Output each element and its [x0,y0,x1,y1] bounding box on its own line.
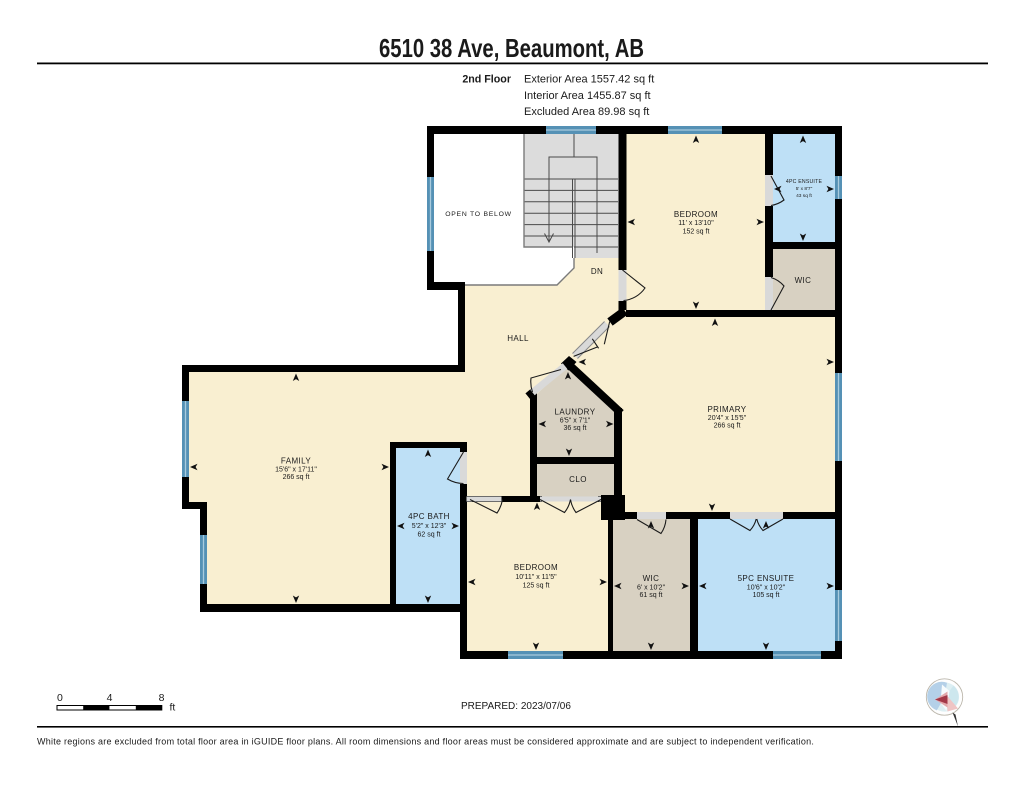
svg-text:266 sq ft: 266 sq ft [714,423,741,430]
svg-text:105 sq ft: 105 sq ft [753,592,780,599]
svg-text:Exterior Area 1557.42 sq ft: Exterior Area 1557.42 sq ft [524,74,654,86]
svg-text:11' x 13'10": 11' x 13'10" [678,220,714,227]
svg-text:43 sq ft: 43 sq ft [796,193,812,199]
svg-text:LAUNDRY: LAUNDRY [555,408,596,417]
svg-text:PRIMARY: PRIMARY [707,405,746,414]
svg-text:DN: DN [591,267,603,276]
svg-text:5PC ENSUITE: 5PC ENSUITE [738,574,795,583]
svg-text:62 sq ft: 62 sq ft [418,532,441,539]
svg-text:125 sq ft: 125 sq ft [523,583,550,590]
svg-text:36 sq ft: 36 sq ft [564,425,587,432]
svg-text:BEDROOM: BEDROOM [514,563,558,572]
svg-text:266 sq ft: 266 sq ft [283,474,310,481]
svg-text:CLO: CLO [569,475,587,484]
svg-text:15'6" x 17'11": 15'6" x 17'11" [275,467,317,474]
svg-text:WIC: WIC [795,276,812,285]
svg-text:4PC BATH: 4PC BATH [408,512,450,521]
svg-text:PREPARED: 2023/07/06: PREPARED: 2023/07/06 [461,701,571,712]
svg-text:5' x 8'7": 5' x 8'7" [796,186,813,192]
svg-text:2nd Floor: 2nd Floor [462,74,511,86]
svg-text:0: 0 [57,692,63,704]
svg-text:10'11" x 11'5": 10'11" x 11'5" [515,574,557,581]
svg-text:5'2" x 12'3": 5'2" x 12'3" [412,523,447,530]
svg-text:4PC ENSUITE: 4PC ENSUITE [786,179,823,185]
svg-text:ft: ft [170,702,176,714]
svg-text:HALL: HALL [507,334,529,343]
svg-text:White regions are excluded fro: White regions are excluded from total fl… [37,737,814,747]
svg-text:BEDROOM: BEDROOM [674,210,718,219]
svg-text:Excluded Area 89.98 sq ft: Excluded Area 89.98 sq ft [524,106,649,118]
svg-text:20'4" x 15'5": 20'4" x 15'5" [708,415,747,422]
svg-text:10'6" x 10'2": 10'6" x 10'2" [747,585,786,592]
svg-text:WIC: WIC [643,574,660,583]
svg-text:6510 38 Ave, Beaumont, AB: 6510 38 Ave, Beaumont, AB [379,33,644,63]
svg-text:61 sq ft: 61 sq ft [640,592,663,599]
svg-text:4: 4 [107,692,113,704]
svg-text:OPEN TO BELOW: OPEN TO BELOW [445,211,512,218]
svg-text:Interior Area 1455.87 sq ft: Interior Area 1455.87 sq ft [524,90,651,102]
svg-text:6'5" x 7'1": 6'5" x 7'1" [560,418,591,425]
svg-text:8: 8 [159,692,165,704]
svg-text:FAMILY: FAMILY [281,457,312,466]
svg-text:6' x 10'2": 6' x 10'2" [637,585,666,592]
svg-text:152 sq ft: 152 sq ft [683,229,710,236]
